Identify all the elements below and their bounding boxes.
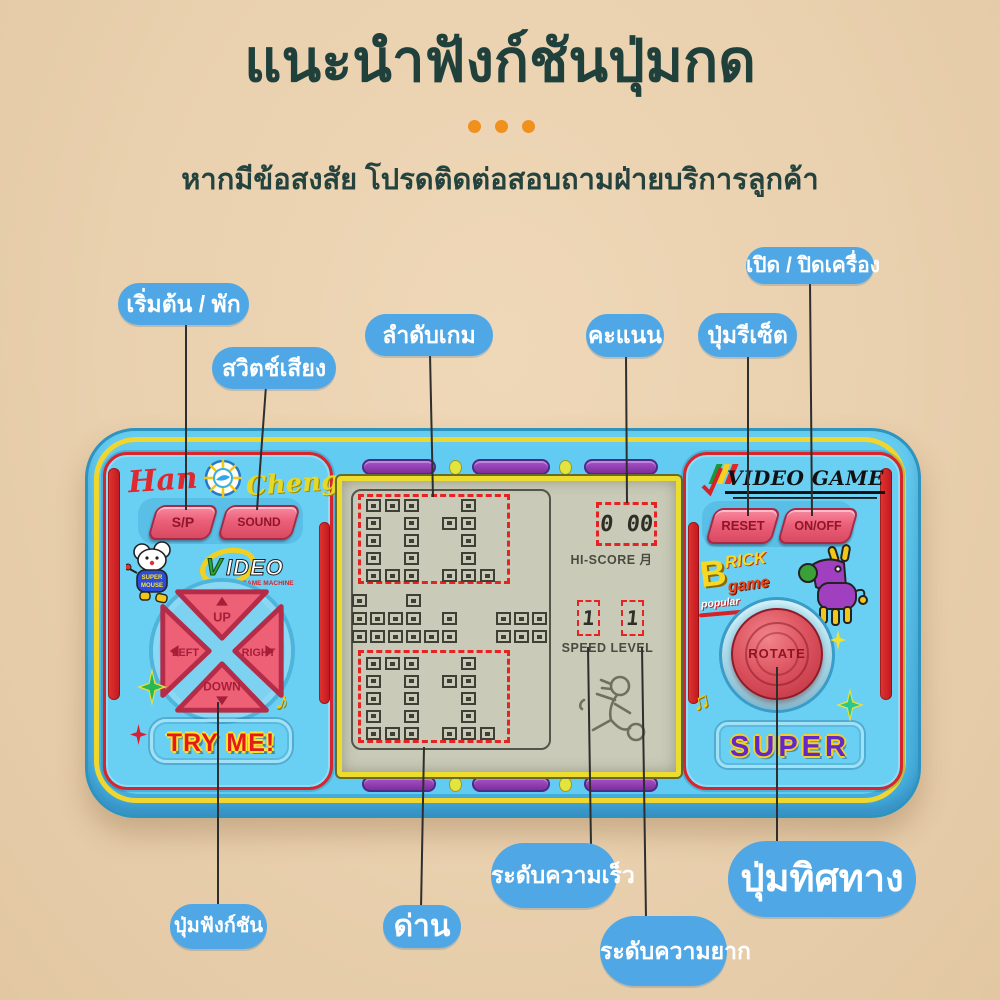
lcd-block <box>385 569 400 582</box>
brand-han: Han <box>127 461 199 501</box>
decor-dot <box>559 460 572 475</box>
decor-dot <box>449 460 462 475</box>
decor-pill <box>584 776 658 792</box>
callout-difficulty-level: ระดับความยาก <box>600 916 727 986</box>
runner-doodle-icon <box>570 670 656 754</box>
lcd-block <box>442 727 457 740</box>
decor-pill <box>472 776 550 792</box>
decor-dot <box>559 777 572 792</box>
callout-game-order: ลำดับเกม <box>365 314 493 356</box>
decor-pill <box>472 459 550 475</box>
compass-logo-icon <box>203 458 243 498</box>
lcd-block <box>442 517 457 530</box>
decor-red-bar <box>108 468 120 700</box>
lcd-block <box>352 594 367 607</box>
lcd-block <box>404 710 419 723</box>
decor-red-bar <box>688 522 699 704</box>
speed-digit: 1 <box>577 602 599 634</box>
callout-score: คะแนน <box>586 314 664 357</box>
lcd-block <box>461 657 476 670</box>
difficulty-digit: 1 <box>621 602 643 634</box>
sound-button: SOUND <box>217 505 301 540</box>
lcd-block <box>404 517 419 530</box>
lcd-block <box>404 569 419 582</box>
onoff-button: ON/OFF <box>777 508 859 544</box>
try-me-label: TRY ME! <box>153 722 289 764</box>
page-title: แนะนำฟังก์ชันปุ่มกด <box>0 14 1000 107</box>
dpad-down-label: DOWN <box>203 679 240 693</box>
lcd-block <box>461 534 476 547</box>
lcd-block <box>496 630 511 643</box>
callout-power: เปิด / ปิดเครื่อง <box>746 247 874 284</box>
lcd-block <box>442 612 457 625</box>
callout-start-pause: เริ่มต้น / พัก <box>118 283 249 325</box>
lcd-block <box>366 692 381 705</box>
difficulty-digit-box: 1 <box>621 600 644 636</box>
lcd-block <box>366 534 381 547</box>
lcd-block <box>404 692 419 705</box>
lcd-block <box>461 569 476 582</box>
dpad-right-label: RIGHT <box>242 647 276 659</box>
lcd-block <box>366 710 381 723</box>
lcd-block <box>406 612 421 625</box>
lcd-block <box>404 657 419 670</box>
lcd-block <box>366 657 381 670</box>
lcd-block <box>461 727 476 740</box>
lcd-block <box>406 594 421 607</box>
lcd-block <box>366 552 381 565</box>
decor-pill <box>584 459 658 475</box>
decor-pill <box>362 459 436 475</box>
lcd-block <box>366 727 381 740</box>
decor-dot-2 <box>495 120 508 133</box>
try-me-badge: TRY ME! <box>150 719 292 763</box>
decor-dot-3 <box>522 120 535 133</box>
dpad: UP LEFT RIGHT DOWN <box>148 577 296 725</box>
speed-level-label: SPEED LEVEL <box>555 641 660 655</box>
page-subtitle: หากมีข้อสงสัย โปรดติดต่อสอบถามฝ่ายบริการ… <box>0 156 1000 202</box>
score-highlight: 0 00 <box>596 502 657 546</box>
video-game-logo-text: VIDEO GAME <box>727 466 884 490</box>
video-game-logo: VIDEO GAME <box>697 458 893 504</box>
lcd-block <box>366 569 381 582</box>
speed-digit-box: 1 <box>577 600 600 636</box>
sound-button-label: SOUND <box>224 507 294 538</box>
lcd-block <box>514 630 529 643</box>
lcd-block <box>496 612 511 625</box>
dpad-up-label: UP <box>213 609 231 624</box>
score-value: 0 00 <box>597 505 656 545</box>
hi-score-label: HI-SCORE 月 <box>559 549 664 568</box>
decor-red-bar <box>319 522 330 704</box>
sp-button: S/P <box>147 505 219 540</box>
super-badge: SUPER <box>716 722 864 768</box>
lcd-block <box>366 499 381 512</box>
lcd-block <box>461 499 476 512</box>
brick-logo-rick: RICK <box>724 548 768 572</box>
lcd-screen: 0 00 HI-SCORE 月 1 1 SPEED LEVEL <box>342 481 676 772</box>
lcd-block <box>370 630 385 643</box>
lcd-block <box>442 675 457 688</box>
callout-direction-button: ปุ่มทิศทาง <box>728 841 916 917</box>
lcd-block <box>388 612 403 625</box>
lcd-block <box>352 612 367 625</box>
lcd-block <box>480 727 495 740</box>
decor-dot <box>449 777 462 792</box>
lcd-block <box>461 552 476 565</box>
lcd-block <box>424 630 439 643</box>
callout-reset-button: ปุ่มรีเซ็ต <box>698 313 797 357</box>
lcd-block <box>442 630 457 643</box>
lcd-block <box>461 710 476 723</box>
lcd-block <box>480 569 495 582</box>
callout-stage: ด่าน <box>383 905 461 948</box>
lcd-block <box>461 692 476 705</box>
lcd-block <box>514 612 529 625</box>
onoff-button-label: ON/OFF <box>784 510 852 542</box>
lcd-block <box>404 552 419 565</box>
lcd-block <box>385 727 400 740</box>
lcd-block <box>385 499 400 512</box>
lcd-block <box>442 569 457 582</box>
callout-sound-switch: สวิตช์เสียง <box>212 347 336 389</box>
lcd-block <box>406 630 421 643</box>
reset-button-label: RESET <box>712 510 774 542</box>
callout-function-button: ปุ่มฟังก์ชัน <box>170 904 267 949</box>
lcd-block <box>385 657 400 670</box>
lcd-block <box>404 675 419 688</box>
sp-button-label: S/P <box>154 507 212 538</box>
callout-speed-level: ระดับความเร็ว <box>491 843 617 908</box>
lcd-block <box>404 499 419 512</box>
lcd-block <box>366 675 381 688</box>
decor-dot-1 <box>468 120 481 133</box>
dpad-left-label: LEFT <box>172 647 199 659</box>
lcd-block <box>404 727 419 740</box>
lcd-block <box>532 612 547 625</box>
lcd-block <box>366 517 381 530</box>
lcd-block <box>532 630 547 643</box>
lcd-block <box>461 675 476 688</box>
lcd-block <box>461 517 476 530</box>
lcd-block <box>388 630 403 643</box>
lcd-block <box>352 630 367 643</box>
rotate-button: ROTATE <box>731 608 823 700</box>
reset-button: RESET <box>705 508 781 544</box>
rotate-button-label: ROTATE <box>733 646 821 661</box>
lcd-block <box>404 534 419 547</box>
lcd-block <box>370 612 385 625</box>
decor-pill <box>362 776 436 792</box>
super-label: SUPER <box>719 725 861 769</box>
